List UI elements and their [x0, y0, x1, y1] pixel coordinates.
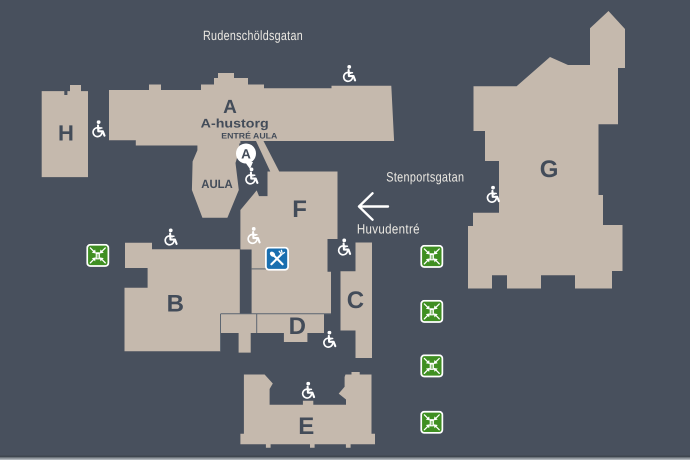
svg-text:Stenportsgatan: Stenportsgatan [386, 170, 464, 185]
svg-text:AULA: AULA [201, 177, 233, 191]
svg-text:H: H [58, 121, 74, 146]
svg-text:A: A [223, 97, 237, 118]
svg-text:C: C [347, 287, 364, 314]
svg-text:A: A [241, 147, 251, 162]
svg-text:B: B [167, 291, 184, 318]
svg-text:F: F [292, 196, 307, 223]
svg-text:D: D [289, 313, 306, 340]
svg-text:Huvudentré: Huvudentré [357, 221, 420, 236]
svg-text:G: G [540, 156, 559, 183]
svg-text:Rudenschöldsgatan: Rudenschöldsgatan [203, 28, 303, 43]
svg-text:A-hustorg: A-hustorg [201, 117, 269, 131]
svg-text:E: E [298, 413, 314, 440]
svg-text:ENTRÉ AULA: ENTRÉ AULA [221, 131, 277, 141]
